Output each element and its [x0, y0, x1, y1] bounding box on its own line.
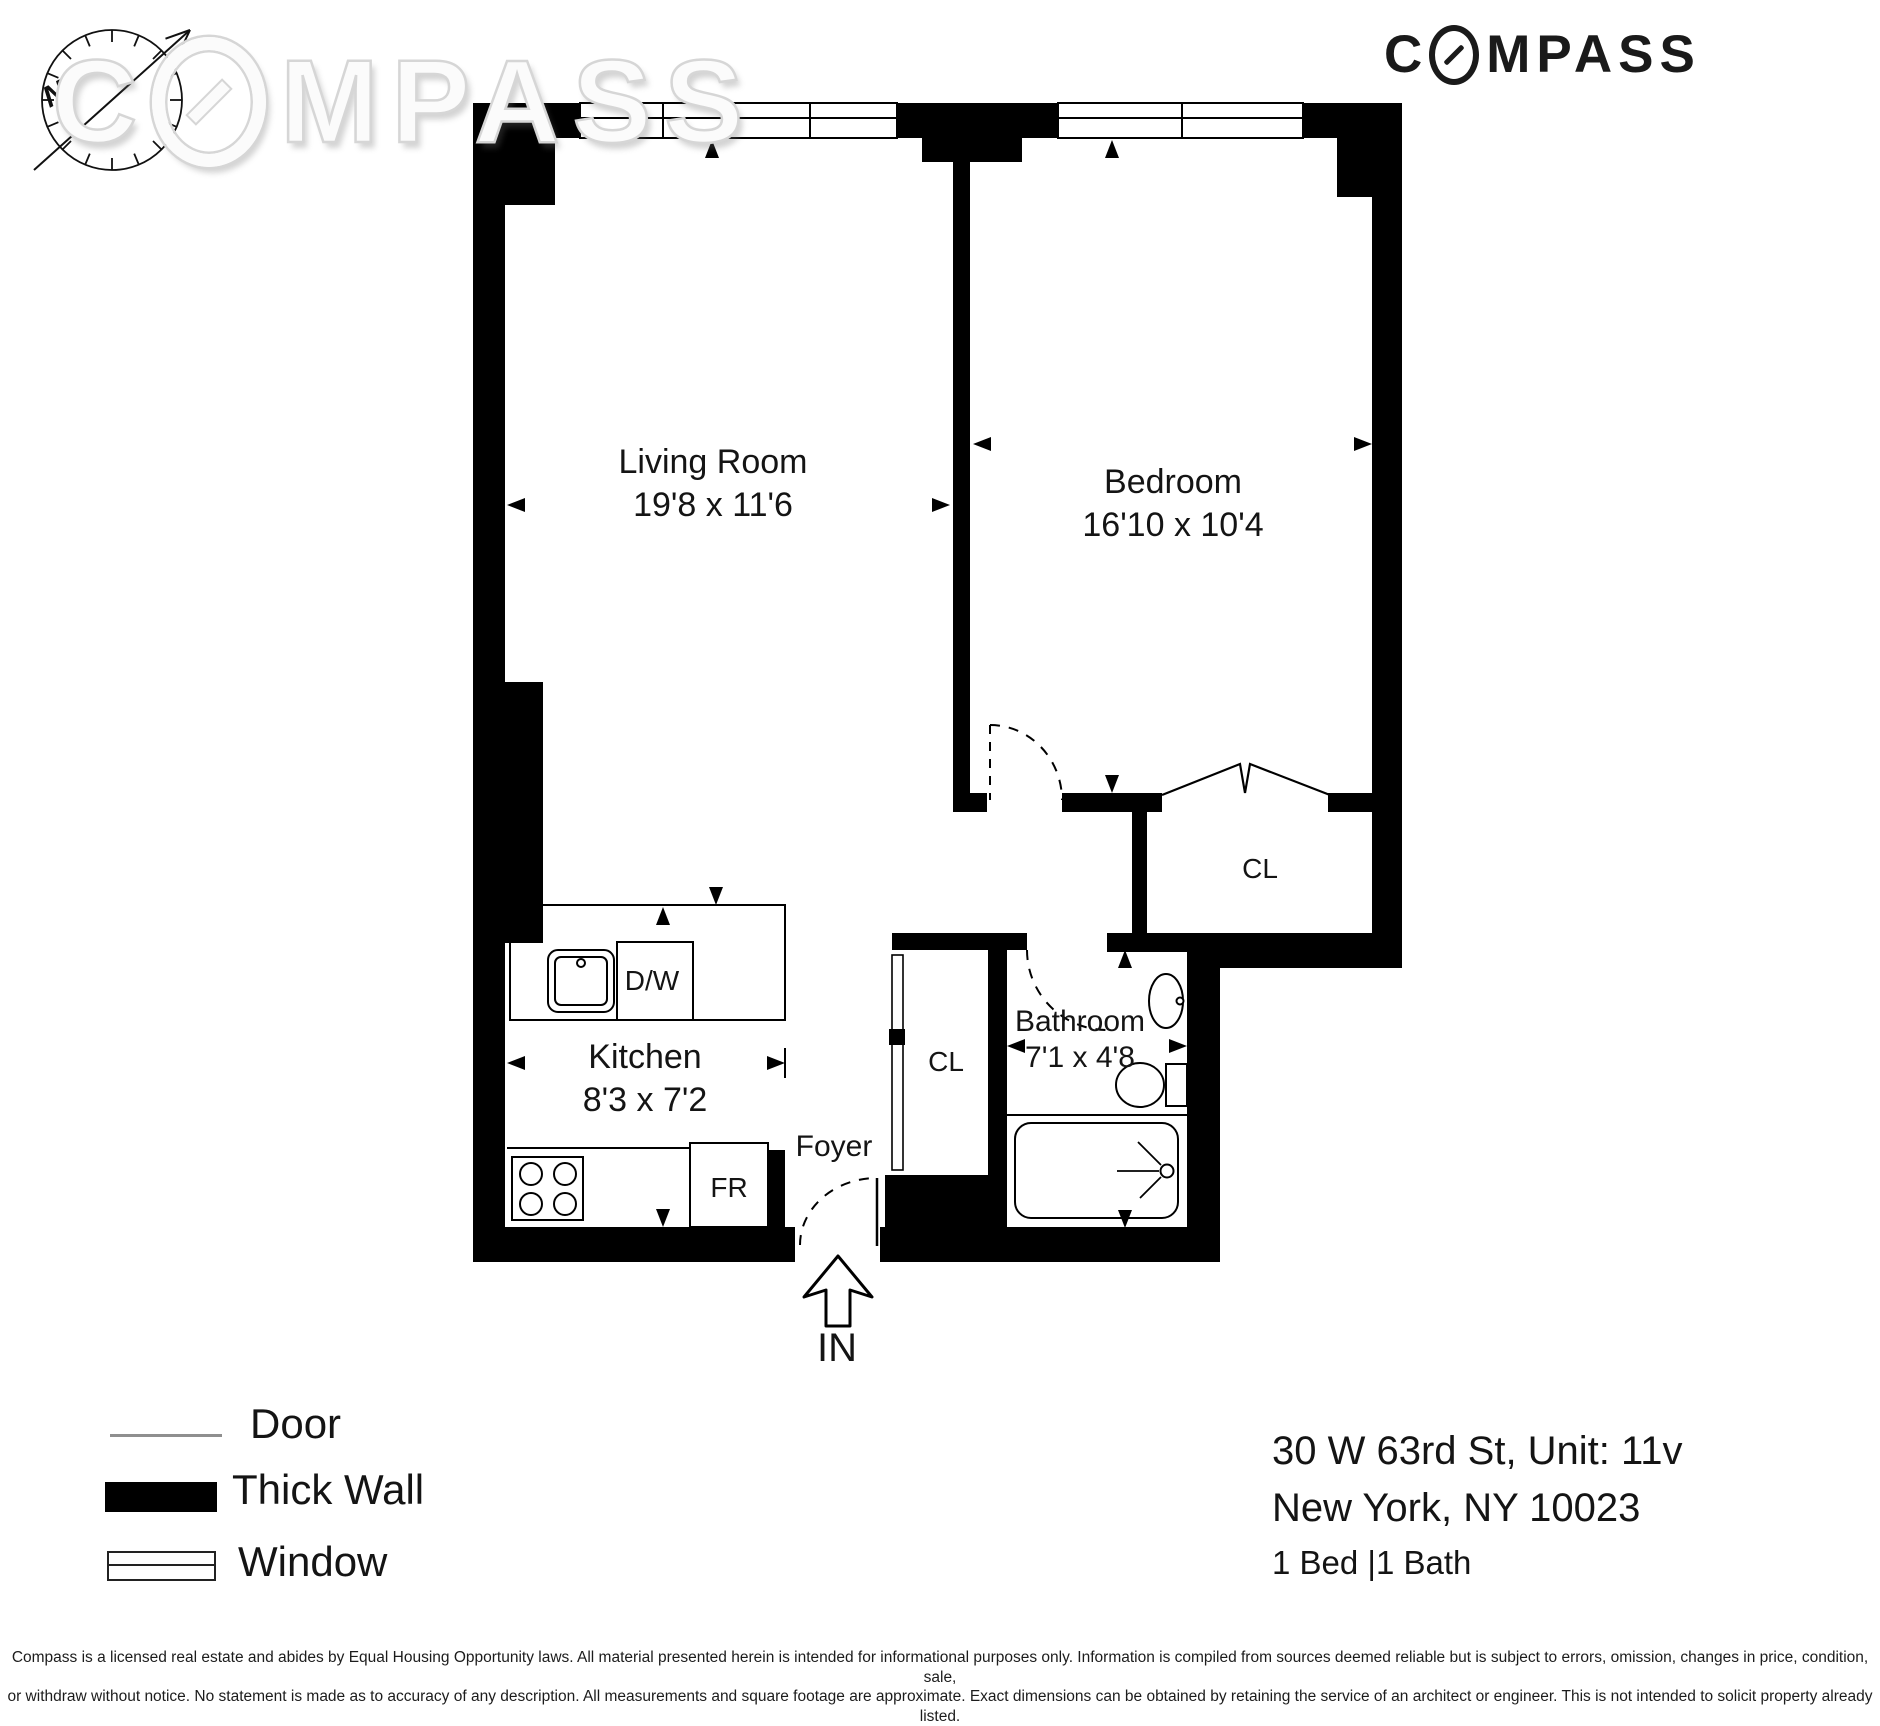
- dishwasher-label: D/W: [625, 965, 679, 997]
- address-line2: New York, NY 10023: [1272, 1485, 1683, 1531]
- bathroom-label: Bathroom 7'1 x 4'8: [1015, 1004, 1145, 1076]
- legend-thick-wall-label: Thick Wall: [232, 1466, 424, 1514]
- kitchen-name: Kitchen: [583, 1036, 708, 1079]
- disclaimer: Compass is a licensed real estate and ab…: [0, 1648, 1880, 1726]
- living-room-name: Living Room: [619, 441, 808, 484]
- bedroom-closet-door: [1162, 764, 1330, 795]
- foyer-label: Foyer: [796, 1129, 873, 1165]
- disclaimer-line2: or withdraw without notice. No statement…: [0, 1687, 1880, 1726]
- watermark-o-icon: [152, 37, 266, 167]
- kitchen-label: Kitchen 8'3 x 7'2: [583, 1036, 708, 1122]
- fridge-label: FR: [710, 1172, 747, 1204]
- stove-icon: [512, 1157, 583, 1220]
- address-line1: 30 W 63rd St, Unit: 11v: [1272, 1428, 1683, 1474]
- kitchen-sink-icon: [548, 950, 614, 1012]
- bedroom-door: [990, 725, 1062, 800]
- legend-window-label: Window: [238, 1538, 387, 1586]
- kitchen-dims: 8'3 x 7'2: [583, 1079, 708, 1122]
- entry-door: [800, 1178, 877, 1246]
- bathroom-sink-icon: [1149, 974, 1184, 1028]
- compass-watermark: C MPASS: [52, 34, 756, 170]
- bathroom-arrow-up: [1118, 950, 1132, 968]
- entry-in-label: IN: [817, 1326, 857, 1370]
- bedroom-arrow-left: [973, 437, 991, 451]
- foyer-closet-label: CL: [928, 1046, 964, 1078]
- living-room-arrow-left: [507, 498, 525, 512]
- foyer-closet-door: [889, 955, 905, 1170]
- bedroom-arrow-right: [1354, 437, 1372, 451]
- bedroom-arrow-down: [1105, 775, 1119, 793]
- legend-window-symbol: [107, 1551, 216, 1581]
- living-room-dims: 19'8 x 11'6: [619, 484, 808, 527]
- compass-logo: C MPASS: [1384, 24, 1701, 85]
- living-room-arrow-right: [932, 498, 950, 512]
- bedroom-closet-label: CL: [1242, 853, 1278, 885]
- bathroom-dims: 7'1 x 4'8: [1015, 1040, 1145, 1076]
- bedroom-dims: 16'10 x 10'4: [1082, 504, 1263, 547]
- bedroom-name: Bedroom: [1082, 461, 1263, 504]
- entry-in-arrow-icon: [804, 1256, 872, 1326]
- bedroom-label: Bedroom 16'10 x 10'4: [1082, 461, 1263, 547]
- disclaimer-line1: Compass is a licensed real estate and ab…: [0, 1648, 1880, 1687]
- bedroom-arrow-up: [1105, 140, 1119, 158]
- legend-door-label: Door: [250, 1400, 341, 1448]
- bathroom-name: Bathroom: [1015, 1004, 1145, 1040]
- logo-o-icon: [1429, 25, 1479, 85]
- kitchen-arrow-right: [767, 1056, 785, 1070]
- watermark-text-c: C: [52, 34, 150, 170]
- logo-text-c: C: [1384, 24, 1428, 85]
- watermark-text-mpass: MPASS: [280, 34, 756, 170]
- legend-thick-wall-symbol: [105, 1482, 217, 1512]
- living-room-label: Living Room 19'8 x 11'6: [619, 441, 808, 527]
- bedroom-window: [1058, 103, 1303, 138]
- property-address: 30 W 63rd St, Unit: 11v New York, NY 100…: [1272, 1428, 1683, 1582]
- legend-door-symbol: [110, 1434, 222, 1437]
- kitchen-arrow-down: [656, 1209, 670, 1227]
- bathroom-arrow-right: [1169, 1039, 1187, 1053]
- kitchen-arrow-left: [507, 1056, 525, 1070]
- living-room-arrow-down: [709, 887, 723, 905]
- logo-text-mpass: MPASS: [1486, 24, 1701, 85]
- address-beds-baths: 1 Bed |1 Bath: [1272, 1544, 1683, 1582]
- bathtub-icon: [1015, 1123, 1178, 1218]
